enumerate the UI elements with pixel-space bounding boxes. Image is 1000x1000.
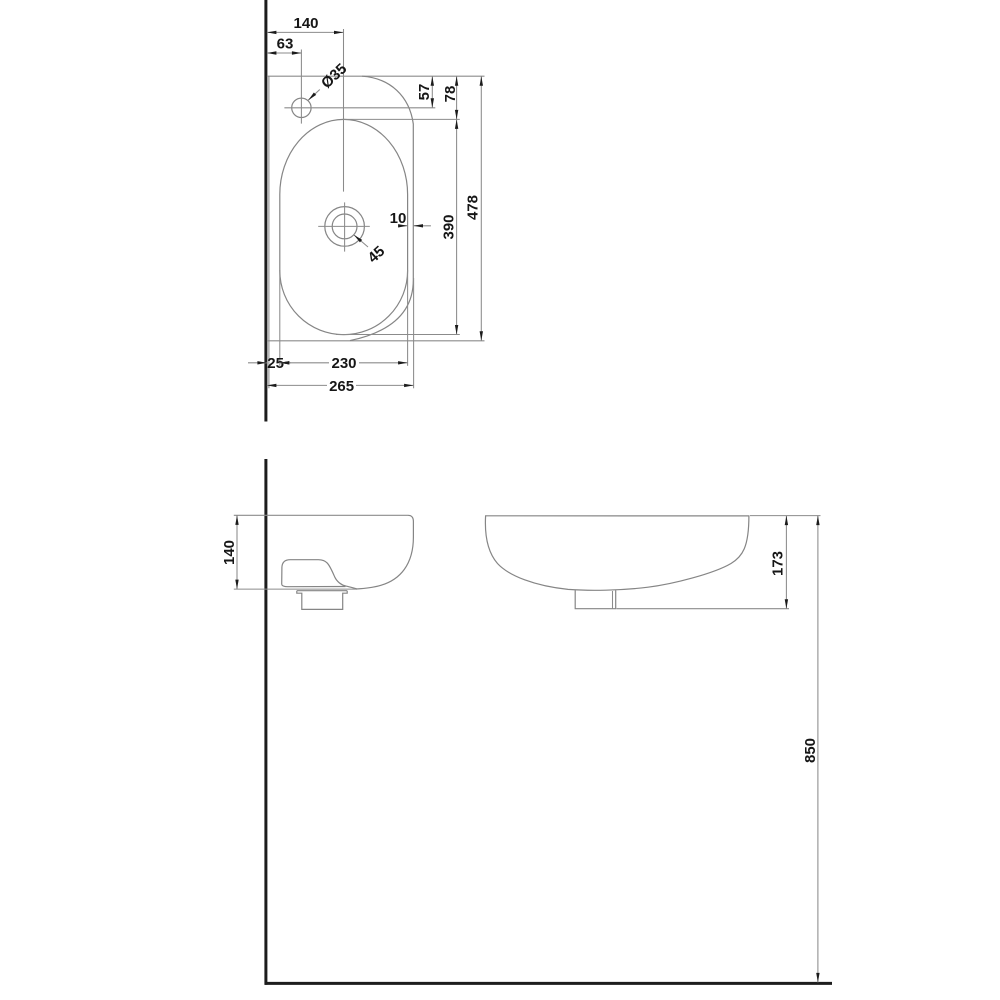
svg-text:63: 63	[277, 36, 294, 53]
svg-text:10: 10	[390, 210, 407, 227]
svg-text:78: 78	[442, 86, 459, 103]
svg-text:25: 25	[267, 355, 284, 372]
svg-text:140: 140	[221, 540, 238, 565]
svg-text:57: 57	[416, 84, 433, 101]
svg-text:230: 230	[331, 355, 356, 372]
svg-text:478: 478	[464, 195, 481, 220]
svg-text:390: 390	[440, 214, 457, 239]
svg-text:140: 140	[293, 15, 318, 32]
svg-text:265: 265	[329, 378, 354, 395]
svg-text:173: 173	[769, 551, 786, 576]
svg-text:850: 850	[802, 738, 819, 763]
